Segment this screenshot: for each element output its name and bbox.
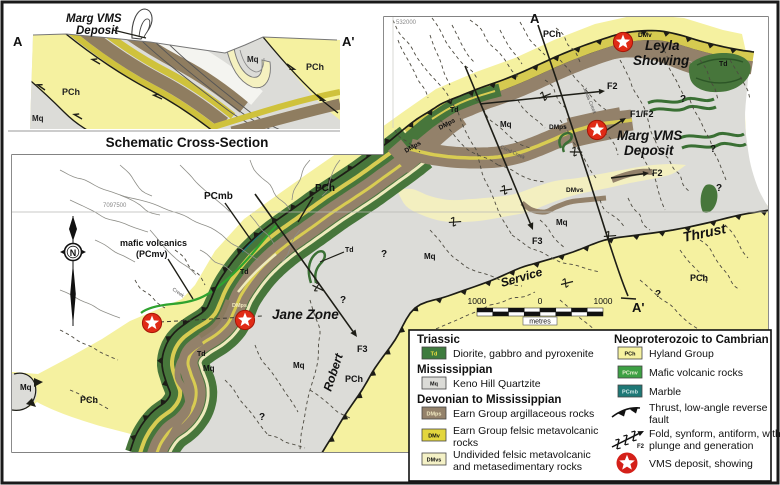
svg-text:?: ? [381,249,387,260]
svg-text:VMS deposit, showing: VMS deposit, showing [649,458,753,470]
svg-text:Mq: Mq [430,382,438,388]
svg-text:mafic volcanics: mafic volcanics [120,238,187,248]
svg-text:Mafic volcanic rocks: Mafic volcanic rocks [649,367,743,379]
svg-text:PCmv: PCmv [622,371,639,377]
svg-text:?: ? [716,183,722,194]
svg-text:metres: metres [529,319,551,326]
svg-text:Leyla: Leyla [645,38,680,53]
svg-text:Td: Td [345,247,354,254]
svg-text:Mq: Mq [20,383,32,392]
svg-text:Deposit: Deposit [624,143,674,158]
svg-text:Triassic: Triassic [417,334,460,346]
svg-text:PCmb: PCmb [622,390,639,396]
svg-text:F2: F2 [637,444,645,450]
svg-text:Mq: Mq [247,55,259,64]
svg-text:Td: Td [719,61,728,68]
svg-text:Marg VMS: Marg VMS [66,13,122,25]
svg-text:F3: F3 [357,344,368,354]
svg-text:N: N [70,248,77,258]
svg-text:Diorite, gabbro and pyroxenite: Diorite, gabbro and pyroxenite [453,348,594,360]
svg-text:0: 0 [538,296,543,306]
svg-text:PCh: PCh [315,183,335,194]
svg-text:Hyland Group: Hyland Group [649,348,714,360]
svg-text:?: ? [340,295,346,306]
svg-text:Mq: Mq [293,361,305,370]
svg-text:Td: Td [450,107,459,114]
svg-text:A: A [530,11,540,26]
svg-text:F3: F3 [532,236,543,246]
svg-text:Earn Group felsic metavolcanic: Earn Group felsic metavolcanic [453,425,598,437]
svg-text:DMvs: DMvs [427,458,442,464]
svg-text:Thrust, low-angle reverse: Thrust, low-angle reverse [649,402,768,414]
svg-text:?: ? [655,289,661,300]
svg-text:A: A [13,34,23,49]
svg-text:Mq: Mq [500,120,512,129]
svg-text:?: ? [680,94,686,105]
svg-text:F1/F2: F1/F2 [630,109,654,119]
svg-text:DMvs: DMvs [566,187,584,194]
svg-text:Mq: Mq [32,114,44,123]
svg-text:Marg VMS: Marg VMS [617,128,682,143]
svg-text:Fold, synform, antiform, with: Fold, synform, antiform, with [649,428,780,440]
svg-text:Schematic Cross-Section: Schematic Cross-Section [106,135,269,150]
svg-text:F2: F2 [607,81,618,91]
svg-text:?: ? [259,412,265,423]
svg-text:and metasedimentary rocks: and metasedimentary rocks [453,461,582,473]
svg-text:Deposit: Deposit [76,25,119,37]
svg-text:1000: 1000 [468,296,487,306]
svg-text:Mq: Mq [203,364,215,373]
svg-text:532000: 532000 [396,20,417,26]
svg-text:PCmb: PCmb [204,191,233,202]
svg-text:1000: 1000 [594,296,613,306]
svg-text:PCh: PCh [690,273,708,283]
svg-text:Mq: Mq [424,252,436,261]
svg-text:fault: fault [649,414,669,426]
svg-text:DMps: DMps [427,412,442,418]
svg-text:Showing: Showing [633,53,690,68]
svg-text:DMv: DMv [638,32,652,39]
svg-text:Keno Hill Quartzite: Keno Hill Quartzite [453,378,541,390]
svg-text:Undivided felsic metavolcanic: Undivided felsic metavolcanic [453,449,591,461]
svg-text:Marble: Marble [649,386,681,398]
svg-text:Neoproterozoic to Cambrian: Neoproterozoic to Cambrian [614,334,769,346]
svg-text:Mq: Mq [556,218,568,227]
svg-text:PCh: PCh [80,395,98,405]
svg-text:7097500: 7097500 [103,203,127,209]
svg-text:Td: Td [431,352,438,358]
svg-text:DMps: DMps [549,124,567,131]
svg-text:PCh: PCh [306,62,324,72]
svg-text:plunge and generation: plunge and generation [649,440,754,452]
svg-text:DMv: DMv [428,434,441,440]
svg-text:Earn Group argillaceous rocks: Earn Group argillaceous rocks [453,408,594,420]
svg-text:Jane Zone: Jane Zone [272,307,339,322]
svg-text:F2: F2 [652,168,663,178]
svg-text:Td: Td [240,269,249,276]
svg-text:PCh: PCh [62,87,80,97]
svg-text:DMps: DMps [232,303,247,309]
svg-text:Td: Td [197,351,206,358]
svg-text:A': A' [342,34,354,49]
svg-text:?: ? [710,144,716,155]
svg-text:Mississippian: Mississippian [417,364,492,376]
svg-text:rocks: rocks [453,437,478,449]
svg-text:PCh: PCh [625,352,637,358]
svg-text:A': A' [632,300,644,315]
svg-text:PCh: PCh [543,29,561,39]
svg-text:(PCmv): (PCmv) [136,249,168,259]
svg-text:Devonian to Mississippian: Devonian to Mississippian [417,394,561,406]
svg-text:PCh: PCh [345,374,363,384]
